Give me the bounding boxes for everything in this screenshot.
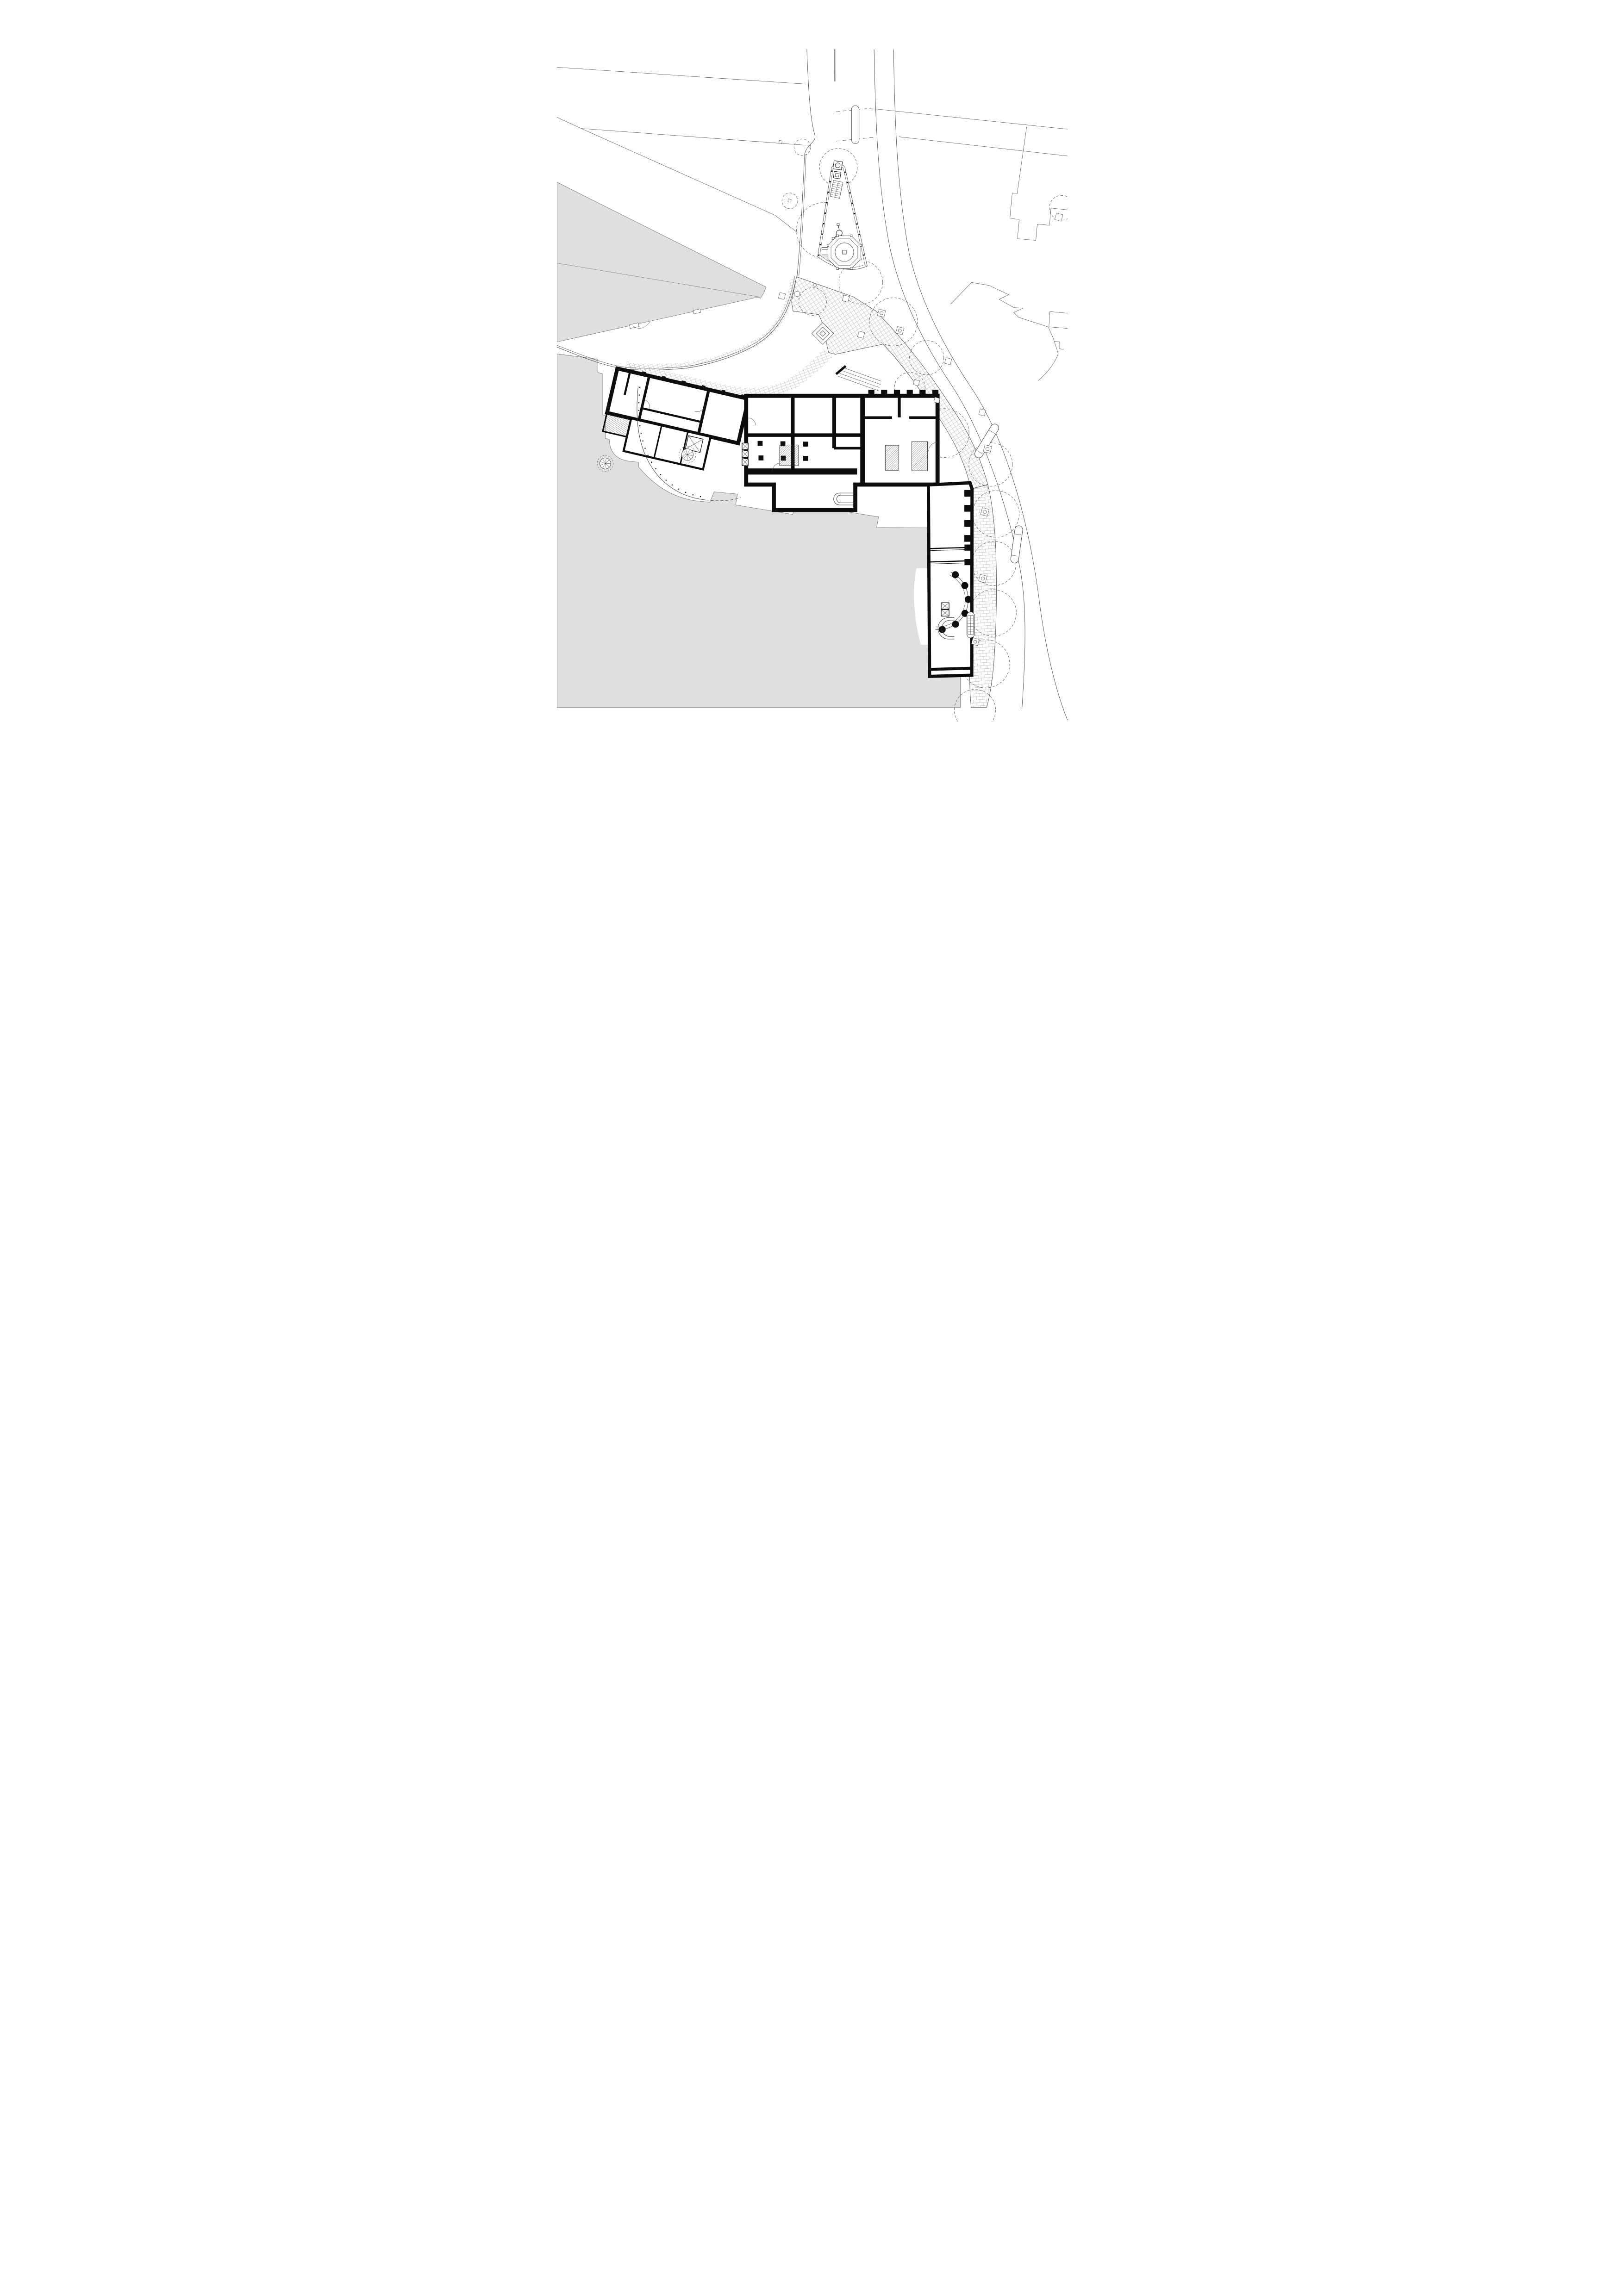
feature-square <box>979 409 986 416</box>
pavilion-core <box>842 250 846 254</box>
pier <box>964 559 970 565</box>
pier <box>964 545 970 551</box>
pavement-feature-s <box>842 295 849 302</box>
south-end-wall <box>930 668 971 670</box>
east-facade-pilasters-tooth <box>964 535 971 541</box>
hall-columns-2-tooth <box>803 456 808 461</box>
main-stair <box>780 445 799 466</box>
entrance-stair-2 <box>885 445 899 470</box>
monument-plinth-2 <box>833 171 841 179</box>
portico-columns-tooth <box>906 390 912 396</box>
drawing-sheet <box>557 0 1068 722</box>
refuge-island <box>851 106 859 143</box>
east-wing <box>928 483 972 676</box>
portico-columns-tooth <box>868 390 874 396</box>
feature-square <box>842 295 849 302</box>
column <box>965 596 972 603</box>
feature-square <box>857 331 864 338</box>
pavement-feature-s <box>778 292 785 299</box>
portico-columns-tooth <box>932 390 938 396</box>
column <box>952 571 959 578</box>
column <box>938 626 945 633</box>
column <box>961 582 968 589</box>
tree-pit-1 <box>779 140 782 143</box>
pavement-feature-s <box>934 397 940 403</box>
pavement-feature-s <box>857 331 864 338</box>
hall-columns-2-tooth <box>758 455 763 460</box>
portico-columns-tooth <box>881 390 887 396</box>
elevator <box>941 603 949 609</box>
pavement-feature-s <box>794 291 800 297</box>
monument-plinth <box>833 161 843 170</box>
feature-square <box>944 358 951 365</box>
portico-columns-tooth <box>919 390 925 396</box>
elevator <box>941 610 949 616</box>
elevator <box>742 443 748 449</box>
elevator <box>742 451 748 457</box>
portico-columns-tooth <box>893 390 899 396</box>
column <box>952 621 959 628</box>
feature-square <box>934 397 940 403</box>
escalator-rungs <box>968 616 974 635</box>
feature-square <box>794 291 800 297</box>
pavement-feature-s <box>979 409 986 416</box>
site-plan-drawing <box>557 0 1068 722</box>
elevator <box>742 459 748 466</box>
east-facade-pilasters-tooth <box>964 490 971 497</box>
tree-pit-2 <box>787 199 791 202</box>
feature-square <box>913 380 919 386</box>
pavement-feature-s <box>944 358 951 365</box>
east-facade-pilasters-tooth <box>964 520 971 527</box>
pavement-feature-s <box>913 380 919 386</box>
east-facade-pilasters-tooth <box>964 505 971 511</box>
hall-columns-1-tooth <box>757 441 762 446</box>
grand-stair <box>912 442 927 471</box>
feature-square <box>778 292 785 299</box>
hall-columns-1-tooth <box>803 442 808 447</box>
